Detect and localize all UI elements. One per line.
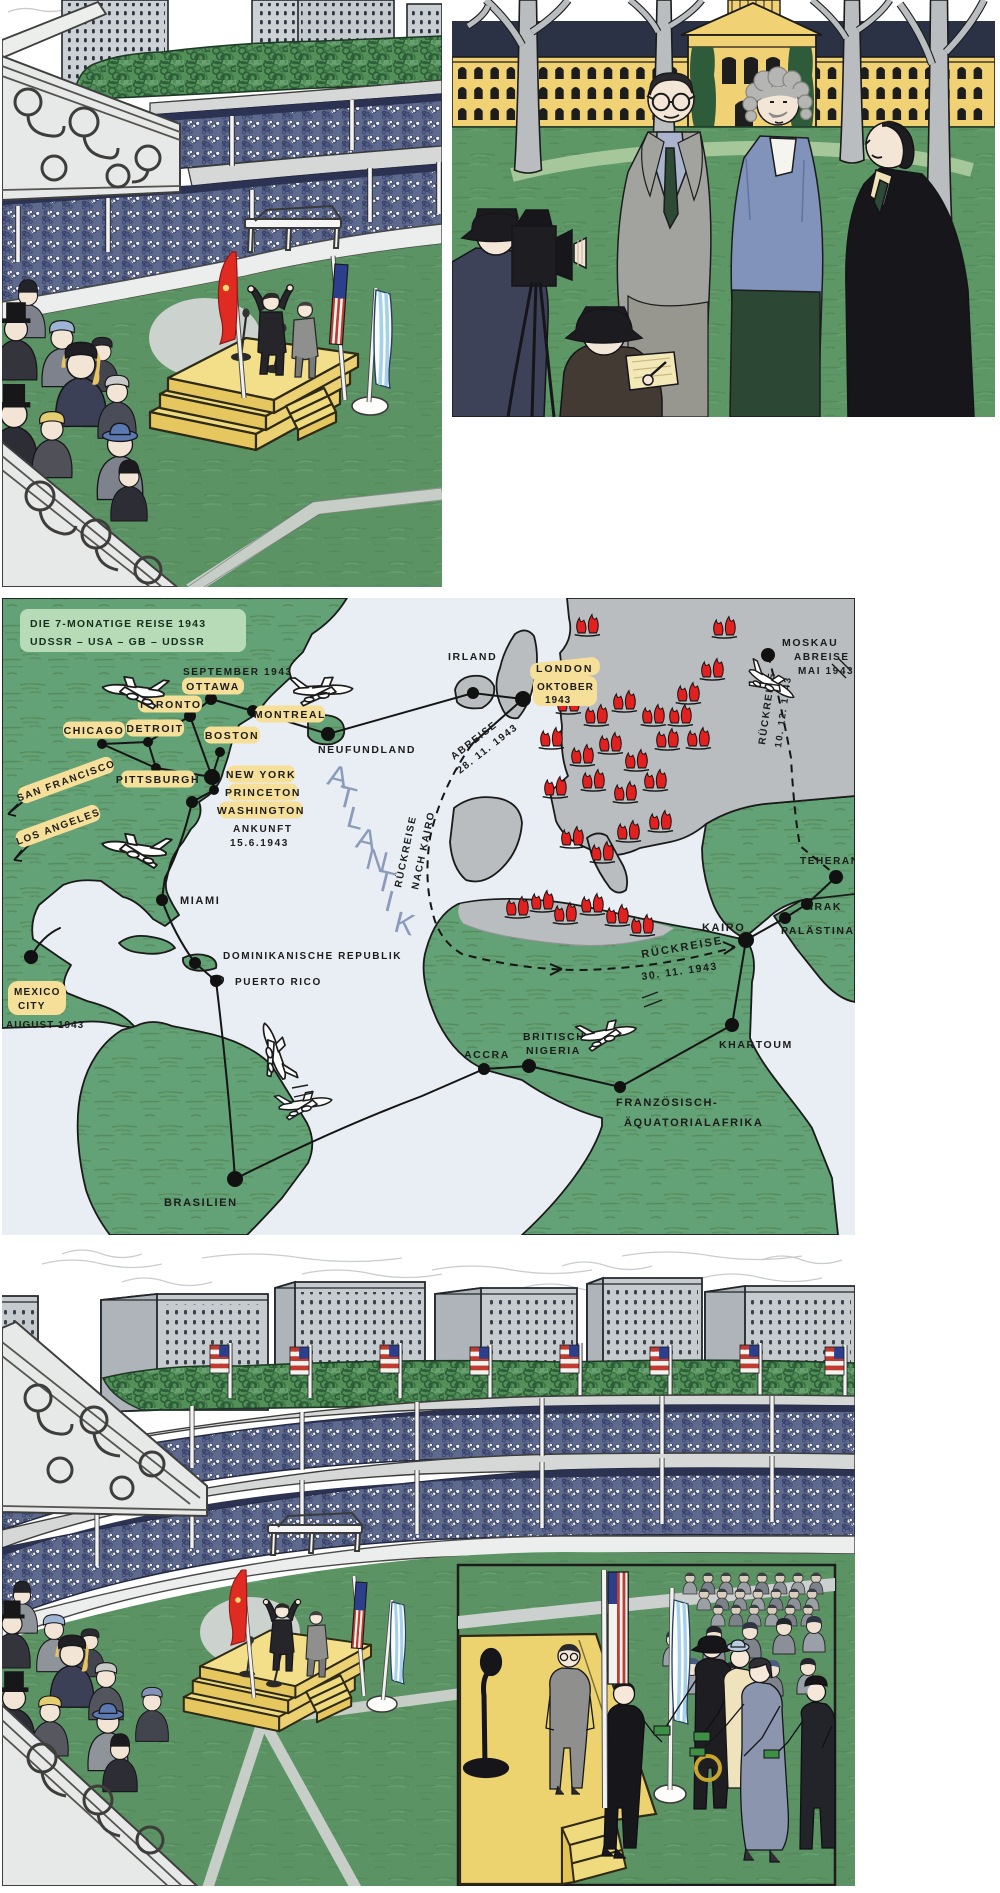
svg-text:NIGERIA: NIGERIA	[526, 1045, 581, 1057]
svg-text:PITTSBURGH: PITTSBURGH	[116, 774, 200, 786]
svg-text:MONTREAL: MONTREAL	[254, 709, 326, 721]
svg-text:NEW YORK: NEW YORK	[226, 769, 296, 781]
svg-text:CITY: CITY	[18, 1001, 46, 1012]
svg-text:MAI 1943: MAI 1943	[798, 666, 854, 677]
svg-text:KHARTOUM: KHARTOUM	[719, 1039, 793, 1051]
svg-text:OKTOBER: OKTOBER	[537, 682, 594, 693]
svg-text:PRINCETON: PRINCETON	[225, 787, 301, 799]
svg-text:BOSTON: BOSTON	[205, 730, 259, 742]
svg-text:FRANZÖSISCH-: FRANZÖSISCH-	[616, 1096, 718, 1109]
svg-text:ÄQUATORIALAFRIKA: ÄQUATORIALAFRIKA	[624, 1116, 763, 1129]
svg-text:WASHINGTON: WASHINGTON	[217, 805, 305, 817]
svg-text:SEPTEMBER 1943: SEPTEMBER 1943	[183, 667, 293, 678]
svg-text:IRLAND: IRLAND	[448, 651, 497, 663]
svg-text:DOMINIKANISCHE REPUBLIK: DOMINIKANISCHE REPUBLIK	[223, 951, 402, 962]
svg-text:LONDON: LONDON	[536, 663, 594, 675]
svg-text:BRASILIEN: BRASILIEN	[164, 1197, 238, 1209]
svg-text:UDSSR – USA – GB – UDSSR: UDSSR – USA – GB – UDSSR	[30, 636, 205, 648]
svg-text:ACCRA: ACCRA	[464, 1049, 510, 1061]
svg-text:CHICAGO: CHICAGO	[64, 725, 125, 737]
svg-text:MOSKAU: MOSKAU	[782, 637, 838, 649]
svg-text:AUGUST 1943: AUGUST 1943	[6, 1020, 84, 1031]
svg-text:MIAMI: MIAMI	[180, 895, 220, 907]
svg-text:1943: 1943	[545, 695, 571, 706]
svg-text:DETROIT: DETROIT	[126, 723, 183, 735]
svg-text:OTTAWA: OTTAWA	[186, 681, 240, 693]
svg-text:ANKUNFT: ANKUNFT	[233, 824, 293, 835]
svg-text:DIE 7-MONATIGE REISE 1943: DIE 7-MONATIGE REISE 1943	[30, 618, 206, 630]
svg-text:15.6.1943: 15.6.1943	[230, 838, 289, 849]
svg-text:PUERTO RICO: PUERTO RICO	[235, 977, 322, 988]
svg-text:TEHERAN: TEHERAN	[800, 856, 855, 867]
svg-text:KAIRO: KAIRO	[702, 922, 745, 934]
svg-text:MEXICO: MEXICO	[14, 987, 61, 998]
svg-text:BRITISCH: BRITISCH	[523, 1031, 585, 1043]
svg-text:PALÄSTINA: PALÄSTINA	[781, 924, 855, 937]
svg-text:IRAK: IRAK	[810, 901, 842, 913]
svg-text:NEUFUNDLAND: NEUFUNDLAND	[318, 744, 416, 756]
